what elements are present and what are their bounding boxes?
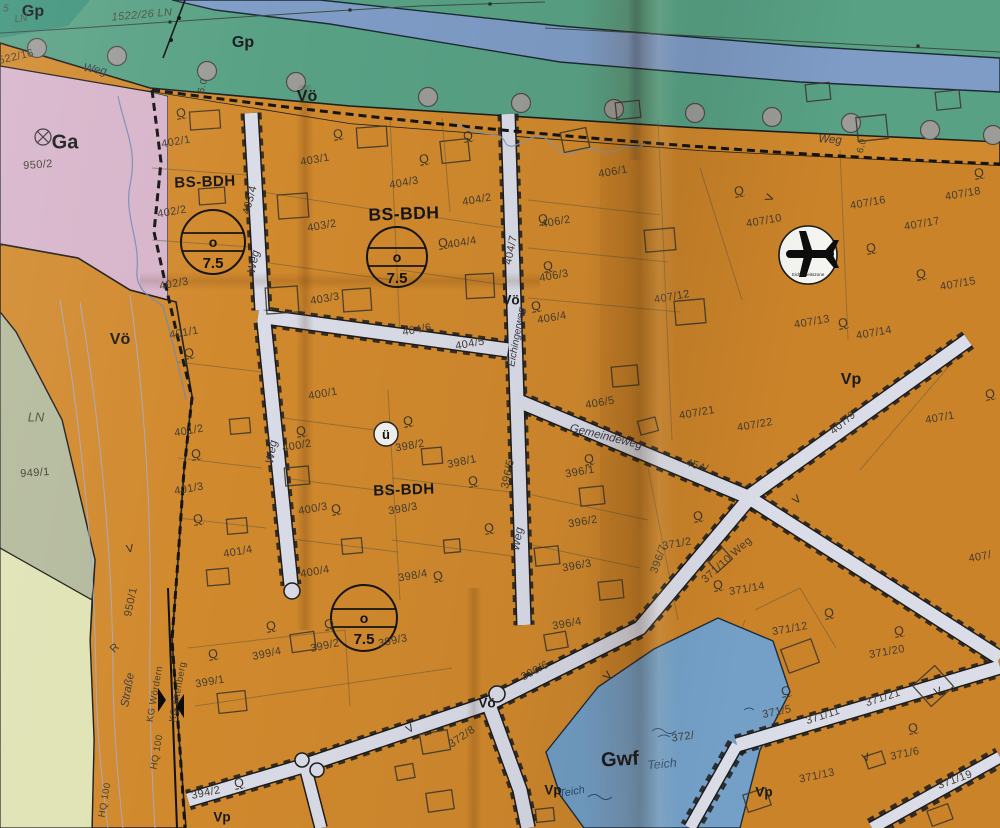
zoning-map-photo: o7.5o7.5o7.5 ü Sicherheitszone GpGpVöGaV… bbox=[0, 0, 1000, 828]
use-template-bottom: 7.5 bbox=[387, 270, 408, 287]
tree-icon bbox=[763, 108, 782, 127]
map-canvas: o7.5o7.5o7.5 ü Sicherheitszone bbox=[0, 0, 1000, 828]
use-template-mid: o bbox=[360, 610, 369, 626]
tree-icon bbox=[419, 88, 438, 107]
use-template-bottom: 7.5 bbox=[203, 255, 224, 272]
tree-icon bbox=[287, 73, 306, 92]
tree-icon bbox=[686, 104, 705, 123]
tree-icon bbox=[198, 62, 217, 81]
tree-icon bbox=[108, 47, 127, 66]
u-circle-symbol: ü bbox=[374, 422, 398, 446]
orchard-area-ga bbox=[0, 66, 168, 300]
use-template-bottom: 7.5 bbox=[354, 631, 375, 648]
u-circle-label: ü bbox=[382, 427, 390, 442]
tree-icon bbox=[28, 39, 47, 58]
tree-icon bbox=[921, 121, 940, 140]
tree-icon bbox=[984, 126, 1000, 145]
use-template-mid: o bbox=[209, 234, 218, 250]
use-template-mid: o bbox=[393, 249, 402, 265]
airplane-caption: Sicherheitszone bbox=[792, 272, 825, 277]
tree-icon bbox=[512, 94, 531, 113]
